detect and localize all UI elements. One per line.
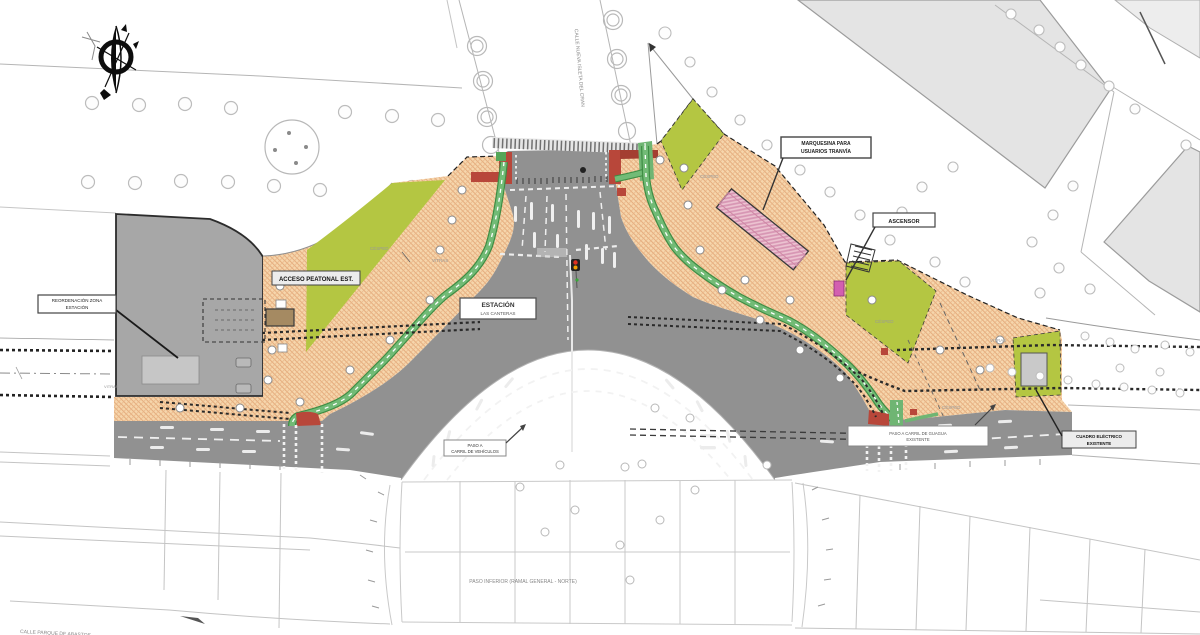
svg-text:PASO A CARRIL DE GUAGUA: PASO A CARRIL DE GUAGUA [889,431,947,436]
svg-text:CÉSPED: CÉSPED [942,404,961,410]
svg-text:PASO A: PASO A [467,443,482,448]
svg-text:EXISTENTE: EXISTENTE [906,437,929,442]
svg-text:CÉSPED: CÉSPED [700,173,719,179]
svg-text:ASCENSOR: ASCENSOR [888,219,919,225]
svg-text:LAS CANTERAS: LAS CANTERAS [481,311,516,316]
svg-text:ESTACIÓN: ESTACIÓN [66,304,89,310]
svg-text:VITRAS: VITRAS [104,384,119,389]
svg-text:EXISTENTE: EXISTENTE [1087,441,1111,446]
svg-text:CÉSPED: CÉSPED [875,318,894,324]
svg-text:CUADRO ELÉCTRICO: CUADRO ELÉCTRICO [1076,434,1122,439]
svg-text:CARRIL DE VEHÍCULOS: CARRIL DE VEHÍCULOS [451,449,499,454]
svg-text:USUARIOS TRANVÍA: USUARIOS TRANVÍA [801,147,851,155]
svg-text:VITRAS: VITRAS [990,338,1006,343]
svg-text:PASO INFERIOR (RAMAL GENERAL -: PASO INFERIOR (RAMAL GENERAL - NORTE) [469,579,577,585]
svg-text:ACCESO PEATONAL EST.: ACCESO PEATONAL EST. [279,277,353,283]
svg-text:CÉSPED: CÉSPED [370,245,389,251]
svg-text:VITRAS: VITRAS [432,258,448,263]
svg-text:MARQUESINA PARA: MARQUESINA PARA [801,141,851,147]
svg-text:REORDENACIÓN ZONA: REORDENACIÓN ZONA [52,297,103,303]
svg-text:ESTACIÓN: ESTACIÓN [481,300,514,309]
